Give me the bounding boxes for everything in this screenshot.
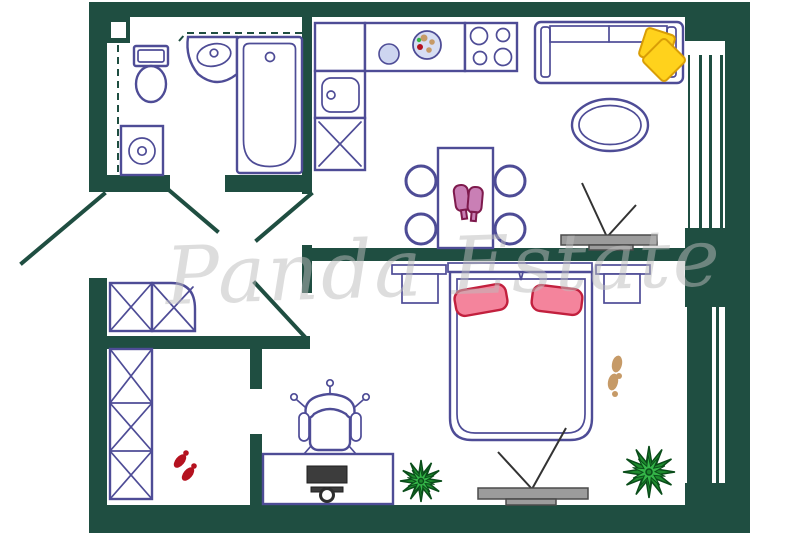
bathtub-icon xyxy=(237,37,302,173)
washing-machine-icon xyxy=(121,126,163,175)
wall-right xyxy=(725,2,750,533)
floor-plan-drawing: Panda Estate xyxy=(0,0,800,533)
wall-vent-notch xyxy=(111,22,126,38)
floor-plan: Panda Estate xyxy=(0,0,800,533)
wall-kitchen-divider xyxy=(302,2,312,194)
wall-bottom xyxy=(89,505,750,533)
small-plate-icon xyxy=(379,44,399,64)
dining-chair-icon xyxy=(495,166,525,196)
wall-top xyxy=(89,2,750,17)
wall-hall-divider xyxy=(107,336,310,349)
dining-chair-icon xyxy=(406,166,436,196)
food-plate-icon xyxy=(413,31,441,59)
wall-bath-bottom-right xyxy=(225,175,312,192)
wall-left-lower xyxy=(89,278,107,533)
wall-left-upper xyxy=(89,2,107,192)
tall-wardrobe-icon xyxy=(110,349,152,499)
toilet-icon xyxy=(134,46,168,102)
wall-bath-bottom-left xyxy=(89,175,170,192)
wall-window-block-top xyxy=(685,17,725,41)
watermark: Panda Estate xyxy=(162,211,723,323)
wall-closet-stub-upper xyxy=(250,349,262,389)
wall-closet-stub-lower xyxy=(250,434,262,511)
